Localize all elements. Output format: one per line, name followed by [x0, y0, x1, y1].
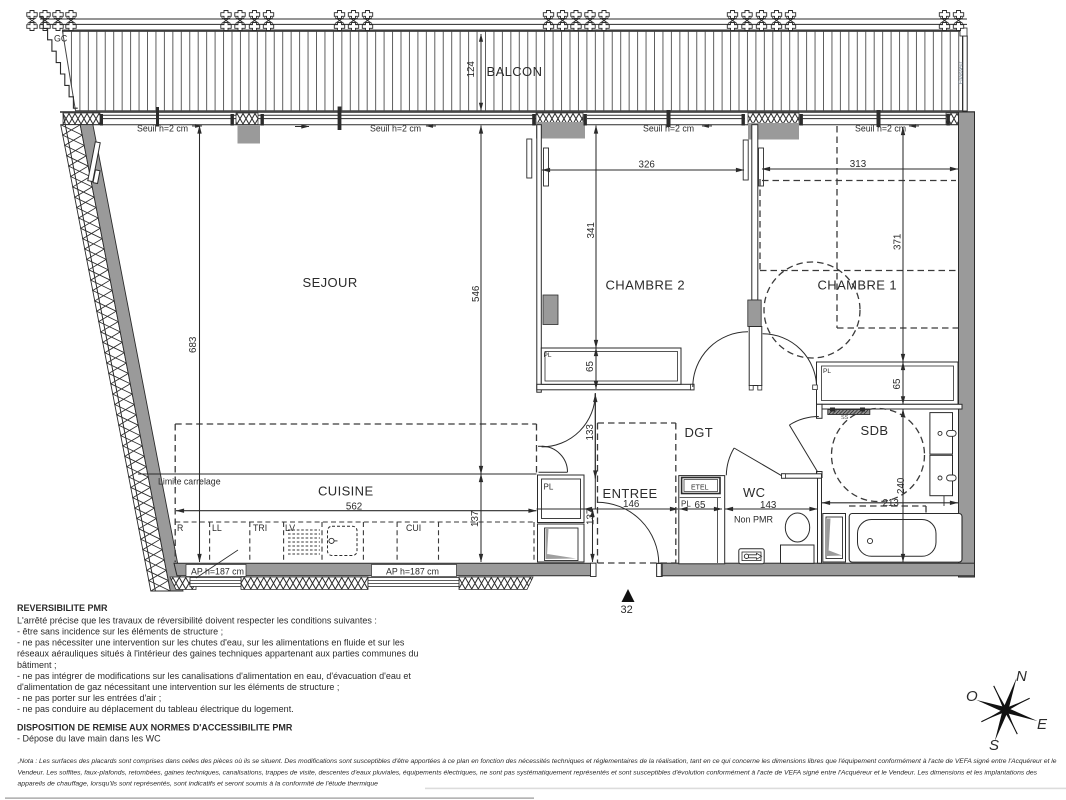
- svg-text:- ne pas nécessiter une interv: - ne pas nécessiter une intervention sur…: [17, 638, 405, 648]
- svg-text:DGT: DGT: [685, 425, 714, 440]
- svg-text:326: 326: [639, 159, 656, 170]
- svg-text:PL: PL: [544, 352, 552, 359]
- svg-text:SS: SS: [841, 415, 849, 421]
- svg-text:- ne pas intégrer de modificat: - ne pas intégrer de modifications sur l…: [17, 671, 411, 681]
- svg-text:ENTREE: ENTREE: [603, 486, 658, 501]
- svg-text:AP h=187 cm: AP h=187 cm: [191, 567, 244, 577]
- svg-text:Limite carrelage: Limite carrelage: [158, 477, 221, 487]
- svg-text:E: E: [1037, 716, 1048, 733]
- svg-text:BALCON: BALCON: [487, 64, 543, 79]
- svg-text:CHAMBRE 1: CHAMBRE 1: [818, 278, 897, 293]
- svg-text:341: 341: [586, 222, 597, 238]
- svg-text:R: R: [177, 523, 183, 533]
- svg-text:124: 124: [466, 61, 477, 78]
- svg-text:LV: LV: [285, 523, 295, 533]
- svg-text:313: 313: [850, 159, 867, 170]
- svg-text:AP h=187 cm: AP h=187 cm: [386, 567, 439, 577]
- svg-text:213: 213: [883, 498, 900, 509]
- svg-text:SEJOUR: SEJOUR: [303, 275, 358, 290]
- svg-text:371: 371: [893, 234, 904, 250]
- svg-text:d'alimentation de gaz nécessit: d'alimentation de gaz nécessitant une in…: [17, 682, 339, 692]
- svg-text:,Nota : Les surfaces des placa: ,Nota : Les surfaces des placards sont c…: [18, 758, 1057, 765]
- svg-text:65: 65: [892, 378, 903, 389]
- svg-text:PL: PL: [544, 483, 554, 492]
- svg-text:Vendeur. Les soffites, faux-pl: Vendeur. Les soffites, faux-plafonds, re…: [18, 769, 1038, 776]
- svg-text:DISPOSITION DE REMISE AUX NORM: DISPOSITION DE REMISE AUX NORMES D'ACCES…: [17, 723, 293, 733]
- svg-text:CHAMBRE 2: CHAMBRE 2: [606, 278, 685, 293]
- svg-text:PL: PL: [823, 368, 831, 375]
- svg-text:Epaisseur: Epaisseur: [959, 61, 965, 84]
- svg-text:240: 240: [896, 477, 907, 494]
- svg-text:65: 65: [585, 361, 596, 372]
- svg-text:LL: LL: [212, 523, 222, 533]
- svg-text:S: S: [989, 737, 999, 754]
- svg-text:WC: WC: [743, 485, 765, 500]
- svg-text:546: 546: [471, 285, 482, 302]
- svg-text:Seuil h=2 cm: Seuil h=2 cm: [855, 124, 906, 134]
- svg-text:143: 143: [760, 500, 777, 511]
- svg-text:PL: PL: [681, 500, 691, 509]
- svg-text:SDB: SDB: [861, 423, 889, 438]
- svg-text:- être sans incidence sur les: - être sans incidence sur les éléments d…: [17, 627, 223, 637]
- svg-text:appareils de chauffage, lorsqu: appareils de chauffage, lorsqu'ils sont …: [18, 781, 379, 788]
- svg-text:Seuil h=2 cm: Seuil h=2 cm: [643, 124, 694, 134]
- svg-text:133: 133: [585, 424, 596, 441]
- svg-text:réseaux aérauliques situés à l: réseaux aérauliques situés à l'intérieur…: [17, 649, 418, 659]
- svg-text:TRI: TRI: [253, 523, 267, 533]
- svg-text:bâtiment ;: bâtiment ;: [17, 660, 57, 670]
- svg-text:ETEL: ETEL: [691, 485, 709, 492]
- svg-text:N: N: [1016, 668, 1027, 685]
- svg-text:- ne pas conduire au déplaceme: - ne pas conduire au déplacement du tabl…: [17, 704, 294, 714]
- svg-text:Non PMR: Non PMR: [734, 515, 774, 525]
- svg-text:- Dépose du lave main dans les: - Dépose du lave main dans les WC: [17, 734, 161, 744]
- svg-text:Seuil h=2 cm: Seuil h=2 cm: [137, 124, 188, 134]
- svg-text:CUISINE: CUISINE: [318, 484, 374, 499]
- svg-text:CUI: CUI: [406, 523, 421, 533]
- svg-text:562: 562: [346, 501, 362, 512]
- svg-text:L'arrêté précise que les trava: L'arrêté précise que les travaux de réve…: [17, 615, 377, 625]
- svg-text:137: 137: [586, 509, 597, 525]
- svg-text:- ne pas porter sur les entrée: - ne pas porter sur les entrées d'air ;: [17, 693, 161, 703]
- svg-text:REVERSIBILITE PMR: REVERSIBILITE PMR: [17, 603, 108, 613]
- svg-text:137: 137: [470, 511, 481, 527]
- svg-text:32: 32: [621, 604, 633, 616]
- svg-text:GC: GC: [54, 34, 68, 44]
- svg-text:65: 65: [695, 500, 706, 511]
- svg-text:Seuil h=2 cm: Seuil h=2 cm: [370, 124, 421, 134]
- svg-text:O: O: [966, 688, 978, 705]
- svg-text:683: 683: [188, 336, 199, 353]
